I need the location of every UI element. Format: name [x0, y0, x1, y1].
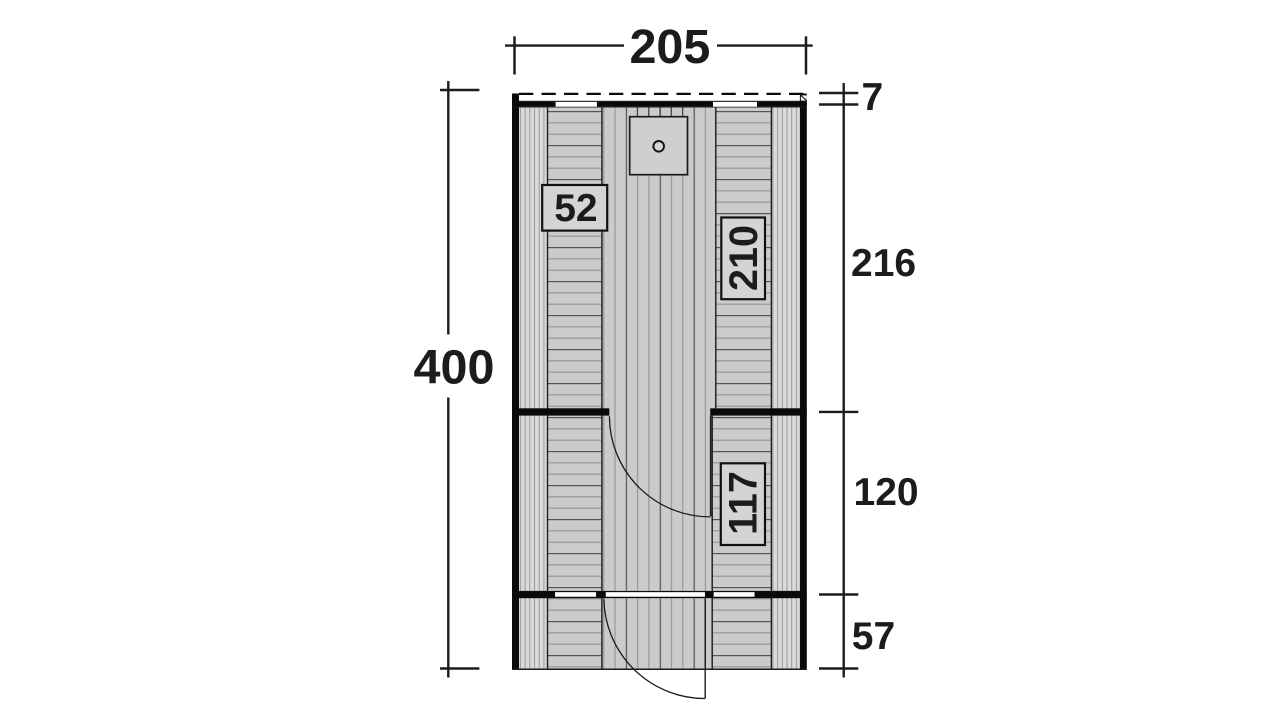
- svg-text:120: 120: [854, 471, 919, 514]
- svg-text:210: 210: [722, 225, 766, 291]
- svg-text:57: 57: [852, 615, 895, 658]
- svg-text:7: 7: [862, 76, 884, 119]
- svg-text:52: 52: [554, 187, 597, 230]
- svg-text:117: 117: [721, 471, 765, 535]
- svg-text:216: 216: [851, 242, 916, 285]
- svg-text:400: 400: [414, 341, 495, 395]
- svg-text:205: 205: [629, 20, 710, 74]
